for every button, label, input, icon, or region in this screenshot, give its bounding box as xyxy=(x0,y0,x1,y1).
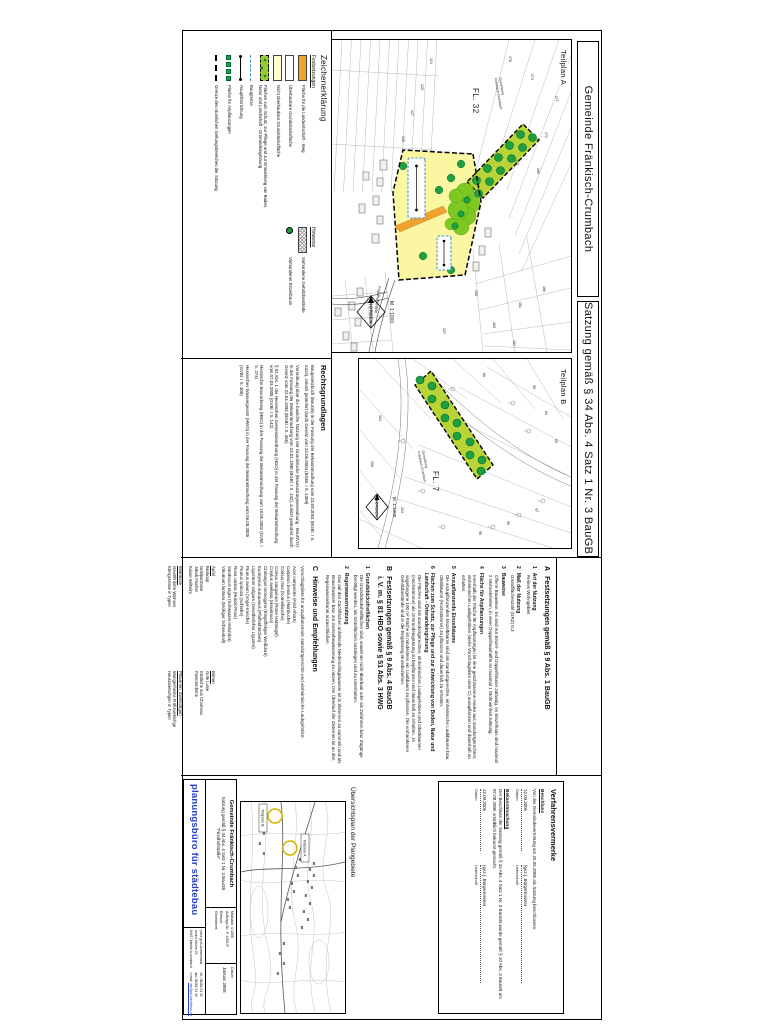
plan-area-markers: Teilplan B Teilplan A xyxy=(259,804,309,862)
vermerk-beschluss: Beschluss Von der Gemeindevertretung am … xyxy=(515,789,544,1006)
agriculture-path-swatch xyxy=(298,55,307,81)
section-a-heading: A Festsetzungen gemäß § 9 Abs. 1 BauGB xyxy=(541,566,550,766)
legal-paragraph: Verordnung über die bauliche Nutzung der… xyxy=(283,365,300,551)
plan-a-scale-label: M. 1:1000 xyxy=(388,301,394,323)
firm-contact: petra groß-zimmermann an der bleiche 29 … xyxy=(184,928,205,1014)
vermerk-bekanntmachung: Bekanntmachung Der Beschluss der Satzung… xyxy=(474,789,509,1006)
fruit-group-walnuesse: Walnüsse Gewöhnliche Walnuss Königsnüsse… xyxy=(166,566,183,661)
legend-item: Flächen zum Schutz, zur Pflege und zur E… xyxy=(258,55,269,213)
legend-item: Nicht überbaubare Grundstücksfläche xyxy=(273,55,282,213)
festsetzung-item: 4Fläche für Anpflanzungen Innerhalb der … xyxy=(460,566,484,766)
title-block-date: Datum: Januar 2006 xyxy=(206,964,236,1014)
text-panel: A Festsetzungen gemäß § 9 Abs. 1 BauGB 1… xyxy=(182,558,556,774)
legal-paragraph: § 81 Abs. 1 der Hessischen Gemeindeordnu… xyxy=(268,365,279,551)
svg-text:65: 65 xyxy=(554,439,558,443)
svg-text:61: 61 xyxy=(544,411,548,415)
signature-field: (gez.), Bürgermeister Unterschrift xyxy=(515,865,528,983)
signature-field: (gez.), Bürgermeister Unterschrift xyxy=(474,865,487,983)
verfahrensvermerke-title: Verfahrensvermerke xyxy=(549,789,558,1006)
svg-text:103: 103 xyxy=(400,507,404,513)
title-block: Gemeinde Fränkisch-Crumbach Satzung gemä… xyxy=(183,779,237,1015)
teilplan-a-map: Friedhofstraße FL. 32 Gemarkung Fränkisc… xyxy=(332,40,571,352)
satzung-title-text: Satzung gemäß § 34 Abs. 4 Satz 1 Nr. 3 B… xyxy=(582,302,594,557)
festsetzung-item: 1Grundstücksfreiflächen Die Grundstücksf… xyxy=(352,566,370,766)
festsetzung-item: 1Art der Nutzung Reines Wohngebiet xyxy=(525,566,537,766)
fruit-varieties: Äpfel Boskoop Goldparmäne Jakob Fischer … xyxy=(166,566,216,766)
plan-b-north-arrow: M. 1:1000 NORDEN xyxy=(366,494,397,520)
svg-text:58: 58 xyxy=(532,385,536,389)
plan-b-gemarkung-label: Gemarkung Fränkisch-Crumbach xyxy=(417,450,432,483)
festsetzung-item: 2Regenwassernutzung Das auf den Dachfläc… xyxy=(325,566,349,766)
rechtsgrundlagen: Rechtsgrundlagen Baugesetzbuch (BauGB) i… xyxy=(183,365,328,551)
svg-text:171: 171 xyxy=(554,95,559,102)
plan-b-north-label: NORDEN xyxy=(375,499,379,518)
svg-text:106: 106 xyxy=(370,461,374,467)
legend-item: Überbaubare Grundstücksfläche xyxy=(286,55,295,213)
greening-area-swatch xyxy=(261,55,270,81)
buildable-area-swatch xyxy=(286,55,295,81)
svg-text:95: 95 xyxy=(506,521,510,525)
svg-text:87: 87 xyxy=(534,508,539,513)
svg-text:150: 150 xyxy=(474,290,478,296)
existing-woods-swatch xyxy=(298,227,307,253)
svg-text:161: 161 xyxy=(518,302,522,308)
non-buildable-area-swatch xyxy=(273,55,282,81)
planting-area-swatch xyxy=(224,55,233,81)
fruit-group-birnen: Birnen Gute Luise Köstliche aus Charneux… xyxy=(187,671,216,766)
divider-textpanel-top xyxy=(556,557,557,775)
svg-text:104: 104 xyxy=(378,415,382,421)
legend-item: Hauptfirstrichtung xyxy=(236,55,245,213)
legend-item: Grenze des räumlichen Geltungsbereiches … xyxy=(214,55,220,213)
document-title-gemeinde: Gemeinde Fränkisch-Crumbach xyxy=(577,41,599,297)
document-title-satzung: Satzung gemäß § 34 Abs. 4 Satz 1 Nr. 3 B… xyxy=(577,301,599,557)
uebersichtsplan-map: Teilplan B Teilplan A xyxy=(240,801,346,1014)
legend-group-hinweise: Hinweise xyxy=(310,227,316,347)
species-intro: Vorschlagsliste für anzupflanzende stand… xyxy=(300,566,305,766)
section-b-heading: B Festsetzungen gemäß § 9 Abs. 4 BauGB i… xyxy=(374,566,392,766)
festsetzung-item: 2Maß der Nutzung Grundflächenzahl (GRZ) … xyxy=(509,566,521,766)
overview-label-a: Teilplan A xyxy=(302,839,307,856)
page: Gemeinde Fränkisch-Crumbach Satzung gemä… xyxy=(0,0,770,1024)
teilplan-b-label: Teilplan B xyxy=(559,367,568,407)
legend-item: Vorhandene Gehölzbestände xyxy=(298,227,307,347)
legend-item: Fläche für die Landwirtschaft - Weg xyxy=(298,55,307,213)
svg-text:137: 137 xyxy=(442,328,446,334)
gemeinde-title-text: Gemeinde Fränkisch-Crumbach xyxy=(582,86,594,253)
title-block-project: Gemeinde Fränkisch-Crumbach Satzung gemä… xyxy=(206,780,236,908)
svg-text:66: 66 xyxy=(482,373,486,377)
plan-a-north-label: NORDEN xyxy=(368,302,373,324)
svg-text:174: 174 xyxy=(530,74,534,80)
divider-right-panel xyxy=(181,775,601,776)
teilplan-b-map: FL. 7 Gemarkung Fränkisch-Crumbach 58 61… xyxy=(359,359,571,548)
plan-b-flur-label: FL. 7 xyxy=(431,471,440,492)
date-field: 12.09.2006 Datum xyxy=(474,789,487,851)
svg-text:125: 125 xyxy=(420,84,424,90)
teilplan-b-frame: Teilplan B xyxy=(358,358,572,549)
festsetzung-item: 3Bauweise Offene Bauweise. Es sind nur E… xyxy=(487,566,505,766)
firm-name: planungsbüro für städtebau xyxy=(189,784,200,915)
firm-logo: planungsbüro für städtebau xyxy=(184,780,205,928)
legal-paragraph: Baugesetzbuch (BauGB) in der Fassung der… xyxy=(304,365,315,551)
species-list: Acer campestre (Feld-Ahorn) Carpinus bet… xyxy=(220,566,297,766)
svg-text:169: 169 xyxy=(536,168,540,174)
baugrenze-line-swatch xyxy=(250,55,251,81)
plan-sheet: Gemeinde Fränkisch-Crumbach Satzung gemä… xyxy=(182,30,602,1020)
title-block-gemeinde: Gemeinde Fränkisch-Crumbach xyxy=(228,783,234,904)
svg-text:163: 163 xyxy=(492,322,496,328)
topo-contours xyxy=(241,802,345,1013)
svg-text:160: 160 xyxy=(542,286,546,292)
ridge-direction-swatch xyxy=(236,55,245,81)
svg-text:127: 127 xyxy=(410,110,414,116)
existing-tree-swatch xyxy=(286,227,295,253)
teilplan-a-frame: Teilplan A xyxy=(331,39,572,353)
uebersichtsplan-title: Übersichtsplan der Plangebiete xyxy=(349,787,356,877)
legend-group-festsetzungen: Festsetzungen xyxy=(310,55,316,213)
plan-b-scale-label: M. 1:1000 xyxy=(392,497,397,518)
date-field: 12.09.2006 Datum xyxy=(515,789,528,851)
plan-b-marker-circle xyxy=(268,809,282,823)
svg-text:128: 128 xyxy=(401,136,405,142)
boundary-line-swatch xyxy=(215,55,217,81)
teilplan-a-label: Teilplan A xyxy=(559,48,568,87)
festsetzung-item: 5Anzupflanzende Einzelbäume Die anzupfla… xyxy=(438,566,456,766)
svg-text:96: 96 xyxy=(478,531,482,535)
divider-legend-rechts xyxy=(181,358,332,359)
verfahrensvermerke: Verfahrensvermerke Beschluss Von der Gem… xyxy=(438,781,564,1014)
svg-text:176: 176 xyxy=(508,56,512,62)
legend-title: Zeichenerklärung xyxy=(319,55,328,355)
legend-item: Fläche für Anpflanzungen xyxy=(224,55,233,213)
svg-text:172: 172 xyxy=(544,132,548,138)
email-link[interactable]: info@pb-staedtebau.de xyxy=(189,983,193,1016)
fruit-group-aepfel: Äpfel Boskoop Goldparmäne Jakob Fischer … xyxy=(187,566,216,661)
plan-a-flur-label: FL. 32 xyxy=(471,88,480,114)
fruit-group-zwetschgen: Pflaumen, Zwetschgen Wangenheims Frühzwe… xyxy=(166,671,183,766)
title-block-meta: Maßstab: 1:1000 Auftrags-Nr.: F 4266-P E… xyxy=(206,908,236,964)
rechtsgrundlagen-title: Rechtsgrundlagen xyxy=(319,365,328,551)
legend: Zeichenerklärung Festsetzungen Fläche fü… xyxy=(183,55,328,355)
svg-text:124: 124 xyxy=(429,58,433,64)
legal-paragraph: Hessische Bauordnung (HBO) in der Fassun… xyxy=(253,365,264,551)
festsetzung-item: 6Flächen zum Schutz, zur Pflege und zur … xyxy=(399,566,435,766)
legend-item: Vorhandener Einzelbaum xyxy=(286,227,295,347)
plan-a-road xyxy=(332,278,395,352)
svg-text:164: 164 xyxy=(512,340,516,346)
section-c-heading: C Hinweise und Empfehlungen xyxy=(309,566,318,766)
legal-paragraph: Hessisches Wassergesetz (HWG) in der Fas… xyxy=(238,365,249,551)
legend-item: Baugrenze xyxy=(249,55,255,213)
overview-label-b: Teilplan B xyxy=(260,809,265,827)
